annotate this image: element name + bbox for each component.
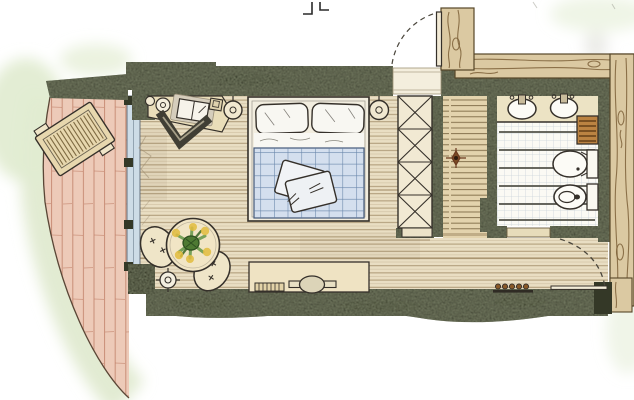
entrance-door-swing [392,13,436,64]
mullion [124,220,133,229]
entrance-door [392,12,442,66]
entrance-threshold [393,68,441,94]
faucet [519,95,526,104]
bathroom-door-leaf [551,286,607,289]
double-bed [248,97,369,221]
pillow-right [311,103,364,134]
bathroom-door-threshold [507,228,550,237]
tray-dish [156,98,170,112]
towel-rail [577,116,598,144]
wood-post-stub [610,278,632,312]
entrance-door-leaf [437,12,442,66]
floor-plan-stage: Hand-drawn hotel suite floor plan [0,0,634,400]
wardrobe [398,96,432,237]
pillow-left [256,103,309,134]
tv-sideboard [249,262,369,293]
bidet [554,184,598,210]
sheet-band [254,133,364,148]
wall-sconce [146,97,155,106]
desk-box [209,98,223,111]
shoe-rack [493,284,533,293]
wardrobe-plinth [402,228,432,237]
section-marker [303,2,329,14]
mullion [124,158,133,167]
faucet [561,94,568,103]
toilet [553,150,598,178]
floor-plan-canvas: Hand-drawn hotel suite floor plan [0,0,634,400]
bathroom [497,94,598,226]
